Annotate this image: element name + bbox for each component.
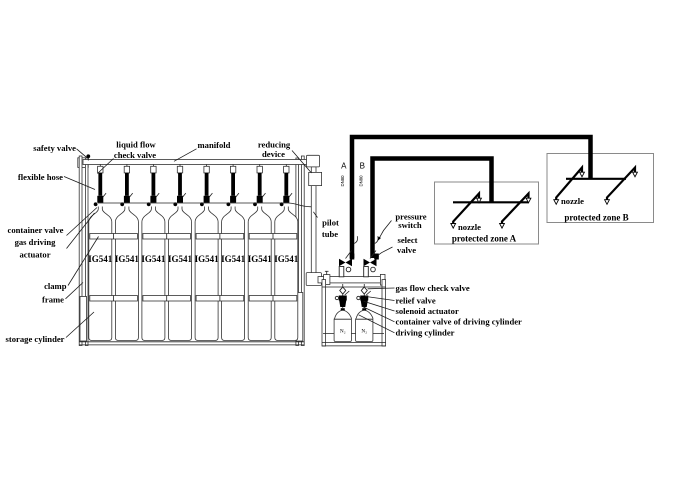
- container-valve-label: gas driving: [15, 237, 57, 247]
- container-valve-label: actuator: [19, 249, 50, 259]
- safety-valve-label: safety valve: [33, 143, 76, 153]
- clamp-bar: [143, 234, 191, 240]
- zone-a-nozzle-label: nozzle: [458, 222, 481, 232]
- select-valve-label: select: [397, 235, 417, 245]
- storage-cylinder: [274, 207, 299, 341]
- storage-cylinder: [168, 207, 193, 341]
- driving-cylinder-label: driving cylinder: [396, 328, 455, 338]
- pipe-a-size-label: DN80: [340, 175, 345, 187]
- storage-cylinder: [115, 207, 140, 341]
- pipe-a-letter: A: [341, 162, 347, 171]
- pilot-tube-label: tube: [322, 229, 338, 239]
- clamp-bar: [90, 234, 138, 240]
- flexible-hose-label: flexible hose: [18, 172, 63, 182]
- driving-frame-left-post: [322, 280, 326, 346]
- relief-valve-label: relief valve: [396, 295, 436, 305]
- driving-frame-right-post: [382, 280, 386, 346]
- gas-flow-check-valve-label: gas flow check valve: [396, 283, 470, 293]
- frame-left-plate: [80, 297, 87, 342]
- liquid-flow-check-valve-label: liquid flow: [116, 139, 156, 149]
- storage-cylinder: [221, 207, 246, 341]
- reducing-device-label: reducing: [258, 139, 291, 149]
- solenoid-actuator-label: solenoid actuator: [396, 306, 459, 316]
- container-valve-label: container valve: [8, 225, 64, 235]
- pipe-b-size-label: DN80: [358, 175, 363, 187]
- zone-b-nozzle-label: nozzle: [561, 196, 584, 206]
- storage-cylinder: [248, 207, 273, 341]
- storage-cylinder-label: storage cylinder: [6, 334, 65, 344]
- container-valve-driving-label: container valve of driving cylinder: [396, 317, 523, 327]
- clamp-label: clamp: [44, 281, 67, 291]
- storage-cylinder: [195, 207, 220, 341]
- manifold-elbow: [307, 155, 320, 167]
- zone-b-name: protected zone B: [564, 212, 628, 222]
- pilot-tube-label: pilot: [322, 217, 339, 227]
- reducing-device-label: device: [262, 149, 285, 159]
- diagram-canvas: IG541 N₂: [0, 0, 680, 480]
- clamp-bar: [249, 296, 297, 302]
- manifold-pipe: [83, 160, 308, 165]
- clamp-bar: [143, 296, 191, 302]
- storage-cylinder: [141, 207, 166, 341]
- clamp-bar: [249, 234, 297, 240]
- zone-a-name: protected zone A: [452, 234, 517, 244]
- storage-cylinder: [88, 207, 113, 341]
- clamp-bar: [196, 234, 244, 240]
- pipe-b-letter: B: [360, 162, 365, 171]
- pressure-switch-label: switch: [398, 220, 422, 230]
- liquid-flow-check-valve-label: check valve: [114, 150, 156, 160]
- frame-label: frame: [42, 295, 64, 305]
- reducing-device-icon: [309, 172, 322, 185]
- clamp-bar: [196, 296, 244, 302]
- manifold-label: manifold: [198, 140, 231, 150]
- clamp-bar: [90, 296, 138, 302]
- select-valve-label: valve: [397, 245, 416, 255]
